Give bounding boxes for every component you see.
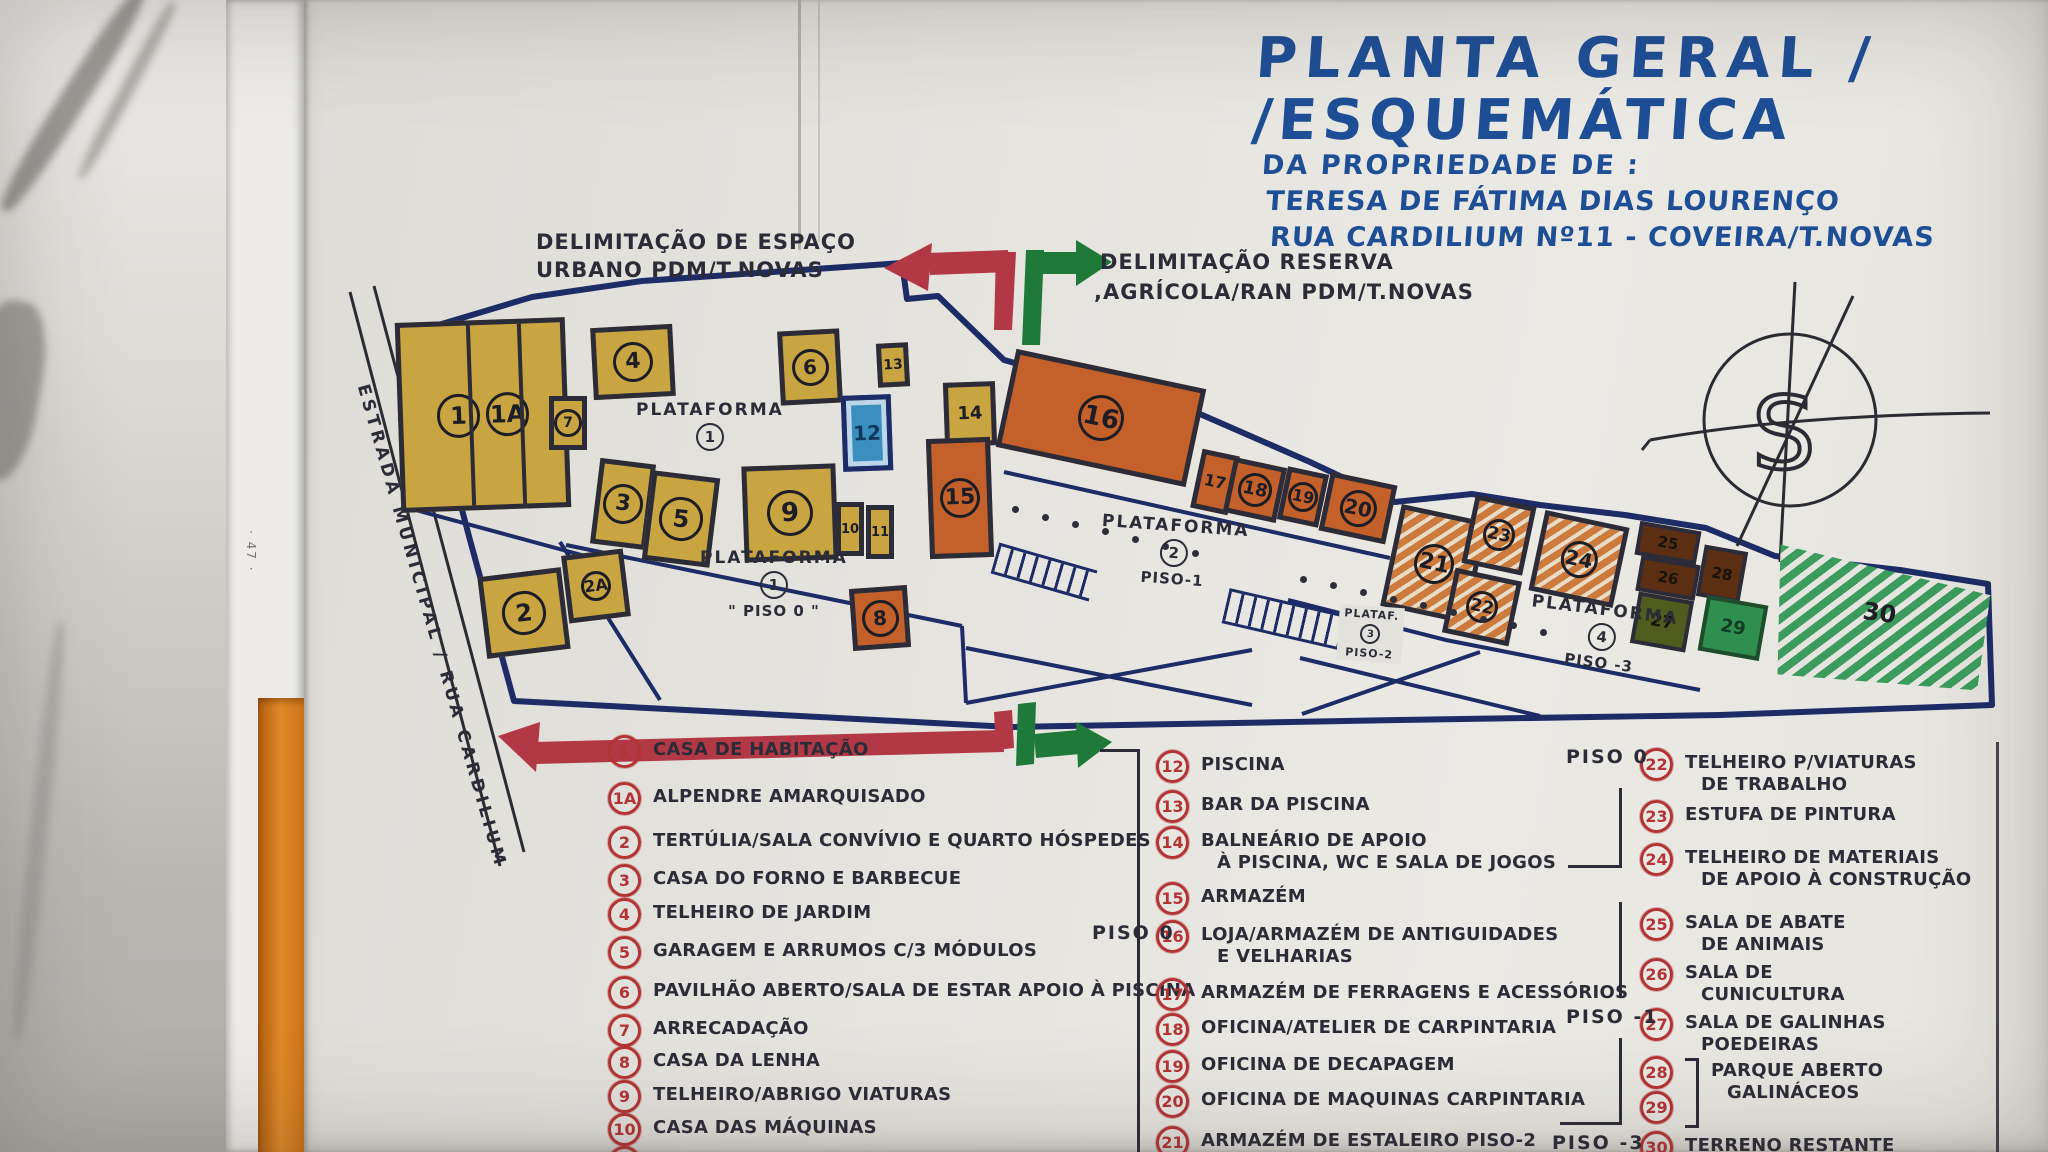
legend-number-10: 10 [608,1113,641,1146]
legend-text-line: OFICINA DE DECAPAGEM [1201,1054,1455,1076]
legend-entry-12: 12PISCINA [1156,750,1285,783]
legend-text: ESTUFA DE PINTURA [1685,800,1896,826]
legend-entry-21: 21ARMAZÉM DE ESTALEIRO PISO-2 [1156,1126,1536,1152]
building-2A: 2A [561,548,631,623]
building-number-25: 25 [1656,534,1679,552]
building-number-26: 26 [1656,569,1679,587]
bracket-line [1619,902,1622,998]
building-number-30: 30 [1861,599,1897,627]
platform-name: PLATAFORMA [700,548,848,568]
legend-text: GARAGEM E ARRUMOS C/3 MÓDULOS [653,936,1037,962]
trail-dot [1012,506,1019,513]
legend-text: ALPENDRE AMARQUISADO [653,782,926,808]
legend-number-30: 30 [1640,1131,1673,1152]
trail-dot [1420,602,1427,609]
legend-entry-20: 20OFICINA DE MAQUINAS CARPINTARIA [1156,1085,1585,1118]
legend-text-line: E VELHARIAS [1217,946,1559,968]
legend-bracket [1685,1058,1699,1128]
legend-text: TELHEIRO DE JARDIM [653,898,871,924]
legend-text-line: POEDEIRAS [1701,1034,1886,1056]
building-6: 6 [777,328,843,405]
legend-entry-30: 30TERRENO RESTANTE [1640,1131,1895,1152]
building-number-20: 20 [1336,486,1380,530]
legend-text-line: TELHEIRO/ABRIGO VIATURAS [653,1084,951,1106]
trail-dot [1360,589,1367,596]
piso-marker: PISO 0 [1092,922,1175,944]
platform-piso: " PISO 0 " [728,602,820,620]
building-number-28: 28 [1710,565,1733,583]
legend-text-line: ARMAZÉM DE ESTALEIRO PISO-2 [1201,1130,1536,1152]
legend-number-3: 3 [608,864,641,897]
legend-number-12: 12 [1156,750,1189,783]
legend-text-line: CUNICULTURA [1701,984,1845,1006]
building-number-1: 1 [436,394,481,439]
legend-text-line: SALA DE ABATE [1685,912,1846,934]
building-number-4: 4 [612,341,654,383]
building-number-8: 8 [860,598,899,637]
legend-number-14: 14 [1156,826,1189,859]
legend-text: TERTÚLIA/SALA CONVÍVIO E QUARTO HÓSPEDES [653,826,1151,852]
agricultural-reserve-label-line2: ,AGRÍCOLA/RAN PDM/T.NOVAS [1094,280,1474,304]
building-number-29: 29 [1719,617,1747,639]
legend-text: SALA DECUNICULTURA [1685,958,1845,1006]
legend-number-18: 18 [1156,1013,1189,1046]
bracket-line [1619,1038,1622,1122]
legend-number-25: 25 [1640,908,1673,941]
legend-text: TERRENO RESTANTE [1685,1131,1895,1152]
platform-piso: PISO-2 [1345,645,1394,661]
legend-text: BAR DA PISCINA [1201,790,1370,816]
legend-text-line: CASA DA LENHA [653,1050,820,1072]
legend-text: ARMAZÉM [1201,882,1306,908]
legend-number-28: 28 [1640,1056,1673,1089]
legend-entry-8: 8CASA DA LENHA [608,1046,820,1079]
legend-text-line: SALA DE GALINHAS [1685,1012,1886,1034]
legend-text: TELHEIRO P/VIATURASDE TRABALHO [1685,748,1917,796]
legend-text-line: BALNEÁRIO DE APOIO [1201,830,1556,852]
bracket-line [1560,1122,1622,1125]
building-28: 28 [1696,545,1748,604]
building-number-5: 5 [657,495,705,543]
agricultural-reserve-label-line1: DELIMITAÇÃO RESERVA [1100,250,1394,274]
legend-text: TELHEIRO/ABRIGO VIATURAS [653,1080,951,1106]
legend-text: ARMAZÉM DE ESTALEIRO PISO-2 [1201,1126,1536,1152]
building-number-15: 15 [939,477,980,518]
building-number-23: 23 [1480,516,1518,554]
trail-dot [1300,576,1307,583]
legend-text-line: CASA DAS MÁQUINAS [653,1117,877,1139]
platform-number: 3 [1360,623,1381,644]
legend-text-line: TERRENO RESTANTE [1685,1135,1895,1152]
legend-entry-18: 18OFICINA/ATELIER DE CARPINTARIA [1156,1013,1556,1046]
legend-text: CASA DE HABITAÇÃO [653,735,869,761]
legend-entry-7: 7ARRECADAÇÃO [608,1014,809,1047]
legend-text-line: LOJA/ARMAZÉM DE ANTIGUIDADES [1201,924,1559,946]
trail-dot [1510,622,1517,629]
legend-number-9: 9 [608,1080,641,1113]
building-number-11: 11 [871,526,889,539]
legend-text: SALA DE ABATEDE ANIMAIS [1685,908,1846,956]
legend-entry-14: 14BALNEÁRIO DE APOIOÀ PISCINA, WC E SALA… [1156,826,1556,874]
legend-text: CASA DO FORNO E BARBECUE [653,864,961,890]
legend-text-line: OFICINA/ATELIER DE CARPINTARIA [1201,1017,1556,1039]
legend-entry-3: 3CASA DO FORNO E BARBECUE [608,864,961,897]
building-number-2: 2 [500,589,548,637]
legend-text: PISCINA [1201,750,1285,776]
bracket-line [1137,749,1140,1152]
legend-number-11: 11 [608,1146,641,1152]
legend-entry-27: 27SALA DE GALINHASPOEDEIRAS [1640,1008,1886,1056]
platform-number: 1 [696,423,724,451]
legend-number-21: 21 [1156,1126,1189,1152]
legend-text: SALA DE GALINHASPOEDEIRAS [1685,1008,1886,1056]
plan-subtitle-address: RUA CARDILIUM Nº11 - COVEIRA/T.NOVAS [1269,222,1936,253]
legend-number-17: 17 [1156,978,1189,1011]
page-number-note: · 47 · [244,530,258,573]
legend-text: ARMAZÉM DE FERRAGENS E ACESSÓRIOS [1201,978,1628,1004]
building-number-10: 10 [841,523,859,536]
legend-entry-25: 25SALA DE ABATEDE ANIMAIS [1640,908,1846,956]
legend-entry-23: 23ESTUFA DE PINTURA [1640,800,1896,833]
building-8: 8 [849,585,911,651]
platform-name: PLATAFORMA [636,400,784,420]
building-number-13: 13 [883,358,903,373]
legend-text-line: OFICINA DE MAQUINAS CARPINTARIA [1201,1089,1585,1111]
legend-edge-line [1996,742,1999,1152]
legend-entry-13: 13BAR DA PISCINA [1156,790,1370,823]
platform-number: 1 [760,571,788,599]
legend-entry-1A: 1AALPENDRE AMARQUISADO [608,782,926,815]
building-number-18: 18 [1235,470,1275,510]
legend-number-26: 26 [1640,958,1673,991]
legend-text-line: ARRECADAÇÃO [653,1018,809,1040]
building-number-17: 17 [1202,472,1227,492]
plan-title-line2: /ESQUEMÁTICA [1250,88,1795,153]
legend-text-line: GALINÁCEOS [1727,1082,1883,1104]
legend-number-19: 19 [1156,1050,1189,1083]
legend-number-6: 6 [608,976,641,1009]
legend-entry-1: 1CASA DE HABITAÇÃO [608,735,869,768]
legend-text: OFICINA DE MAQUINAS CARPINTARIA [1201,1085,1585,1111]
legend-number-20: 20 [1156,1085,1189,1118]
bracket-line [1619,788,1622,868]
marble-vein [8,620,70,1040]
trail-dot [1480,616,1487,623]
legend-entry-6: 6PAVILHÃO ABERTO/SALA DE ESTAR APOIO À P… [608,976,1195,1009]
legend-entry-22: 22TELHEIRO P/VIATURASDE TRABALHO [1640,748,1917,796]
legend-text-line: DE APOIO À CONSTRUÇÃO [1701,869,1971,891]
legend-text: TELHEIRO DE MATERIAISDE APOIO À CONSTRUÇ… [1685,843,1971,891]
building-number-24: 24 [1557,537,1601,581]
legend-entry-9: 9TELHEIRO/ABRIGO VIATURAS [608,1080,951,1113]
piso-marker: PISO -3 [1552,1132,1645,1152]
paper-crease [798,0,801,250]
legend-text-line: PARQUE ABERTO [1711,1060,1883,1082]
legend-entry-11: 11 [608,1146,641,1152]
piso-marker: PISO -1 [1566,1006,1659,1028]
building-29: 29 [1698,595,1769,661]
platform-label-2: PLATAFORMA2PISO-1 [1098,511,1250,593]
legend-text-line: GARAGEM E ARRUMOS C/3 MÓDULOS [653,940,1037,962]
legend-entry-5: 5GARAGEM E ARRUMOS C/3 MÓDULOS [608,936,1037,969]
building-15: 15 [926,437,994,559]
legend-text-line: TELHEIRO P/VIATURAS [1685,752,1917,774]
legend-text-line: PISCINA [1201,754,1285,776]
legend-text-line: TELHEIRO DE JARDIM [653,902,871,924]
legend-text-line: ARMAZÉM DE FERRAGENS E ACESSÓRIOS [1201,982,1628,1004]
legend-entry-19: 19OFICINA DE DECAPAGEM [1156,1050,1455,1083]
urban-delimitation-label-line2: URBANO PDM/T.NOVAS [536,258,824,282]
legend-group-circles: 2829 [1640,1056,1673,1124]
legend-entry-17: 17ARMAZÉM DE FERRAGENS E ACESSÓRIOS [1156,978,1628,1011]
legend-text-line: TERTÚLIA/SALA CONVÍVIO E QUARTO HÓSPEDES [653,830,1151,852]
legend-entry-16: 16LOJA/ARMAZÉM DE ANTIGUIDADESE VELHARIA… [1156,920,1559,968]
legend-text: CASA DAS MÁQUINAS [653,1113,877,1139]
legend-number-15: 15 [1156,882,1189,915]
legend-text-line: TELHEIRO DE MATERIAIS [1685,847,1971,869]
platform-label-1: PLATAFORMA1" PISO 0 " [700,548,848,620]
building-number-7: 7 [554,409,582,437]
legend-text: PARQUE ABERTOGALINÁCEOS [1711,1056,1883,1104]
piso-marker: PISO 0 [1566,746,1649,768]
building-22: 22 [1442,568,1522,647]
building-number-2A: 2A [579,569,613,603]
photographed-site-plan: · 47 · [0,0,2048,1152]
legend-text-line: CASA DE HABITAÇÃO [653,739,869,761]
legend-text: ARRECADAÇÃO [653,1014,809,1040]
building-4: 4 [590,324,676,400]
building-number-21: 21 [1410,540,1458,588]
trail-dot [1450,609,1457,616]
legend-number-7: 7 [608,1014,641,1047]
marble-vein [0,0,153,217]
legend-text: LOJA/ARMAZÉM DE ANTIGUIDADESE VELHARIAS [1201,920,1559,968]
legend-entry-2: 2TERTÚLIA/SALA CONVÍVIO E QUARTO HÓSPEDE… [608,826,1151,859]
legend-text-line: CASA DO FORNO E BARBECUE [653,868,961,890]
platform-number: 4 [1586,621,1617,652]
legend-text-line: DE TRABALHO [1701,774,1917,796]
paper-crease [818,0,820,242]
plan-title-line1: PLANTA GERAL / [1254,26,1880,91]
legend-number-1: 1 [608,735,641,768]
legend-text: OFICINA/ATELIER DE CARPINTARIA [1201,1013,1556,1039]
building-number-16: 16 [1074,391,1129,446]
legend-entry-15: 15ARMAZÉM [1156,882,1306,915]
legend-text-line: ESTUFA DE PINTURA [1685,804,1896,826]
building-7: 7 [549,396,587,450]
urban-delimitation-label-line1: DELIMITAÇÃO DE ESPAÇO [536,230,856,254]
legend-text: OFICINA DE DECAPAGEM [1201,1050,1455,1076]
trail-dot [1072,521,1079,528]
legend-entry-10: 10CASA DAS MÁQUINAS [608,1113,877,1146]
trail-dot [1330,582,1337,589]
building-12: 12 [841,394,894,472]
platform-label-1: PLATAFORMA1 [636,400,784,451]
orange-folder-edge [258,698,308,1152]
legend-number-23: 23 [1640,800,1673,833]
legend-text-line: À PISCINA, WC E SALA DE JOGOS [1217,852,1556,874]
legend-entry-26: 26SALA DECUNICULTURA [1640,958,1845,1006]
legend-entry-28-29: 2829PARQUE ABERTOGALINÁCEOS [1640,1056,1883,1128]
building-number-19: 19 [1285,479,1322,516]
legend-text-line: DE ANIMAIS [1701,934,1846,956]
legend-text-line: BAR DA PISCINA [1201,794,1370,816]
platform-number: 2 [1159,538,1189,568]
legend-number-5: 5 [608,936,641,969]
legend-number-29: 29 [1640,1091,1673,1124]
legend-text-line: SALA DE [1685,962,1845,984]
building-number-12: 12 [853,423,882,444]
building-number-9: 9 [766,489,814,537]
platform-name: PLATAF. [1344,606,1400,623]
bracket-line [1100,749,1140,752]
legend-text-line: ALPENDRE AMARQUISADO [653,786,926,808]
legend-number-8: 8 [608,1046,641,1079]
legend-number-2: 2 [608,826,641,859]
building-11: 11 [866,505,894,559]
building-13: 13 [876,342,910,388]
building-number-6: 6 [791,348,830,387]
plan-subtitle-owner-intro: DA PROPRIEDADE DE : [1261,150,1641,181]
building-number-3: 3 [601,482,646,527]
legend-entry-4: 4TELHEIRO DE JARDIM [608,898,871,931]
building-2: 2 [477,567,570,659]
legend-entry-24: 24TELHEIRO DE MATERIAISDE APOIO À CONSTR… [1640,843,1971,891]
legend-number-4: 4 [608,898,641,931]
trail-dot [1042,514,1049,521]
trail-dot [1390,596,1397,603]
legend-text: CASA DA LENHA [653,1046,820,1072]
building-1: 11A [395,317,572,513]
legend-number-13: 13 [1156,790,1189,823]
legend-text: PAVILHÃO ABERTO/SALA DE ESTAR APOIO À PI… [653,976,1195,1002]
bracket-line [1568,865,1622,868]
marble-vein [0,295,55,484]
legend-text-line: ARMAZÉM [1201,886,1306,908]
legend-text-line: PAVILHÃO ABERTO/SALA DE ESTAR APOIO À PI… [653,980,1195,1002]
building-number-14: 14 [957,405,983,424]
legend-number-1A: 1A [608,782,641,815]
plan-subtitle-owner-name: TERESA DE FÁTIMA DIAS LOURENÇO [1265,186,1841,217]
legend-number-24: 24 [1640,843,1673,876]
platform-label-3: PLATAF.3PISO-2 [1336,604,1405,664]
legend-text: BALNEÁRIO DE APOIOÀ PISCINA, WC E SALA D… [1201,826,1556,874]
